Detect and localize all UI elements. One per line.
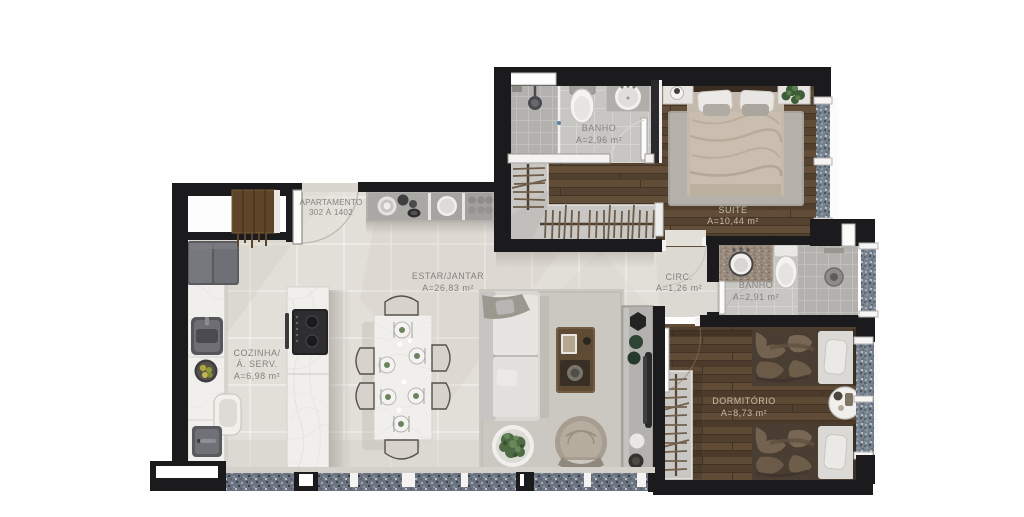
svg-text:BANHO: BANHO	[739, 280, 774, 290]
svg-text:SUITE: SUITE	[718, 205, 747, 215]
svg-text:A=8,73 m²: A=8,73 m²	[721, 408, 767, 418]
svg-text:302 À 1402: 302 À 1402	[309, 207, 353, 217]
svg-text:A=2,96 m²: A=2,96 m²	[576, 135, 622, 145]
svg-text:APARTAMENTO: APARTAMENTO	[299, 198, 362, 207]
svg-text:DORMITÓRIO: DORMITÓRIO	[712, 396, 776, 406]
svg-text:BANHO: BANHO	[582, 123, 617, 133]
svg-text:Á. SERV.: Á. SERV.	[236, 359, 277, 369]
svg-text:A=2,91 m²: A=2,91 m²	[733, 292, 779, 302]
svg-text:A=26,83 m²: A=26,83 m²	[422, 283, 474, 293]
svg-text:A=10,44 m²: A=10,44 m²	[707, 216, 759, 226]
svg-text:CIRC.: CIRC.	[666, 272, 693, 282]
svg-text:ESTAR/JANTAR: ESTAR/JANTAR	[412, 271, 484, 281]
svg-text:COZINHA/: COZINHA/	[233, 348, 280, 358]
svg-text:A=1,26 m²: A=1,26 m²	[656, 283, 702, 293]
svg-text:A=6,98 m²: A=6,98 m²	[234, 371, 280, 381]
